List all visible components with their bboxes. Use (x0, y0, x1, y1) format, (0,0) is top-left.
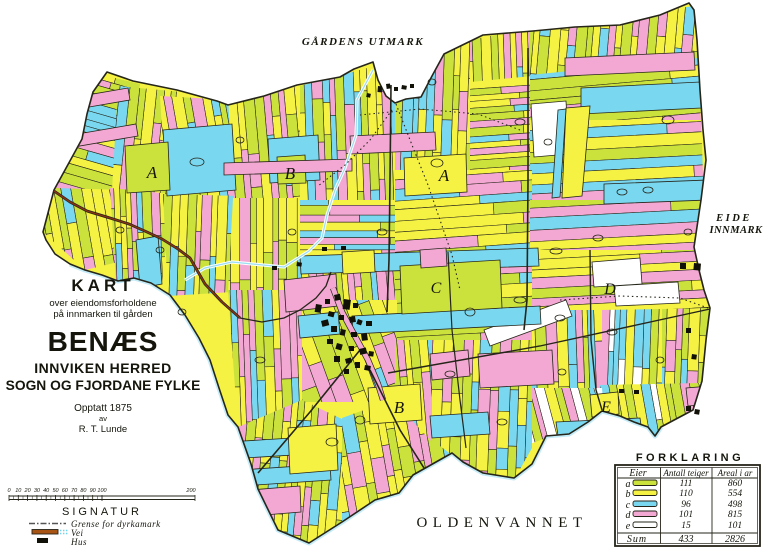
svg-text:INNVIKEN HERRED: INNVIKEN HERRED (34, 360, 171, 376)
svg-text:D: D (603, 281, 616, 298)
svg-text:E: E (600, 399, 611, 416)
svg-text:554: 554 (728, 489, 743, 499)
svg-text:b: b (626, 489, 631, 500)
svg-text:A: A (438, 166, 450, 185)
svg-text:R. T. Lunde: R. T. Lunde (79, 424, 127, 435)
svg-text:EIDE: EIDE (715, 213, 752, 224)
svg-text:101: 101 (728, 521, 742, 531)
svg-text:15: 15 (681, 521, 691, 531)
svg-text:FORKLARING: FORKLARING (636, 452, 744, 464)
svg-text:SIGNATUR: SIGNATUR (62, 506, 142, 518)
svg-text:B: B (394, 398, 405, 417)
svg-text:100: 100 (97, 488, 107, 494)
svg-text:Grense for dyrkamark: Grense for dyrkamark (71, 519, 161, 529)
svg-text:200: 200 (185, 488, 196, 494)
svg-text:40: 40 (43, 488, 50, 494)
svg-text:e: e (626, 521, 631, 532)
svg-text:101: 101 (679, 510, 693, 520)
svg-text:BENÆS: BENÆS (48, 326, 159, 357)
svg-text:60: 60 (62, 488, 69, 494)
svg-text:10: 10 (15, 488, 22, 494)
svg-text:INNMARK: INNMARK (708, 225, 763, 236)
svg-text:2826: 2826 (725, 534, 745, 545)
svg-text:Eier: Eier (628, 468, 646, 479)
svg-text:90: 90 (90, 488, 97, 494)
svg-text:70: 70 (71, 488, 78, 494)
svg-text:GÅRDENS UTMARK: GÅRDENS UTMARK (302, 36, 424, 48)
svg-text:Antall teiger: Antall teiger (662, 468, 709, 478)
svg-text:110: 110 (679, 489, 693, 499)
svg-text:over eiendomsforholdene: over eiendomsforholdene (49, 298, 156, 309)
svg-text:KART: KART (71, 276, 134, 295)
svg-text:815: 815 (728, 510, 743, 520)
svg-text:111: 111 (680, 479, 693, 489)
svg-text:Areal i ar: Areal i ar (717, 468, 753, 478)
svg-text:C: C (431, 280, 442, 297)
svg-text:Hus: Hus (70, 537, 87, 547)
svg-text:20: 20 (24, 488, 32, 494)
svg-text:30: 30 (34, 488, 41, 494)
svg-text:B: B (285, 164, 296, 183)
svg-text:A: A (146, 163, 158, 182)
svg-text:80: 80 (80, 488, 87, 494)
svg-text:av: av (99, 414, 107, 423)
svg-text:på innmarken til gården: på innmarken til gården (53, 309, 152, 320)
svg-text:860: 860 (728, 479, 743, 489)
svg-text:SOGN OG FJORDANE FYLKE: SOGN OG FJORDANE FYLKE (6, 378, 201, 393)
svg-text:OLDENVANNET: OLDENVANNET (416, 515, 587, 531)
svg-text:96: 96 (681, 500, 691, 510)
svg-text:498: 498 (728, 500, 743, 510)
svg-text:Opptatt 1875: Opptatt 1875 (74, 403, 132, 414)
svg-text:Sum: Sum (627, 534, 647, 545)
svg-text:50: 50 (52, 488, 59, 494)
svg-text:433: 433 (679, 534, 694, 545)
